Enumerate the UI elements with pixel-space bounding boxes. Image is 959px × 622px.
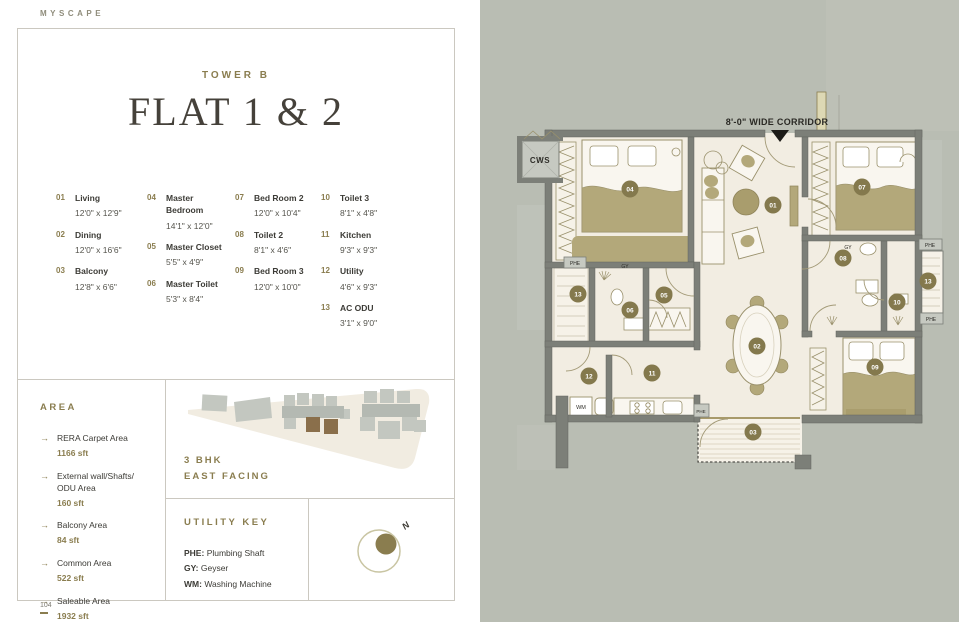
utility-key-row: GY: Geyser [184,561,300,576]
legend-room: Master Closet5'5" x 4'9" [166,241,222,269]
area-value: 84 sft [57,535,107,547]
badge-01: 01 [765,197,782,214]
toilet-icon [611,289,623,305]
badge-06: 06 [622,302,639,319]
legend-item: 13 AC ODU3'1" x 9'0" [321,302,405,330]
legend-room: Toilet 38'1" x 4'8" [340,192,377,220]
svg-text:01: 01 [769,203,777,210]
area-item: → Balcony Area84 sft [40,520,155,547]
utility-key-row: PHE: Plumbing Shaft [184,546,300,561]
legend-room: Bed Room 312'0" x 10'0" [254,265,304,293]
phe-label: PHE [925,243,936,249]
arrow-icon: → [40,433,49,460]
arrow-icon: → [40,520,49,547]
svg-text:10: 10 [893,300,901,307]
svg-text:11: 11 [649,371,656,378]
page-number-dash [40,612,48,614]
area-label: Common Area522 sft [57,558,111,585]
arrow-icon: → [40,558,49,585]
cws-label: CWS [530,156,550,165]
legend-dim: 12'0" x 10'4" [254,207,304,219]
pillow-icon [880,342,904,360]
legend-column-2: 04 Master Bedroom14'1" x 12'0" 05 Master… [147,192,233,314]
cws-shaft: CWS [517,131,563,183]
sitemap-panel: 3 BHK EAST FACING [166,379,454,498]
facing-label: EAST FACING [184,469,270,485]
legend-dim: 12'0" x 10'0" [254,281,304,293]
legend-room: Bed Room 212'0" x 10'4" [254,192,304,220]
legend-column-1: 01 Living12'0" x 12'9" 02 Dining12'0" x … [56,192,144,302]
legend-number: 09 [235,265,247,293]
svg-text:09: 09 [871,365,879,372]
arrow-icon: → [40,596,49,622]
legend-item: 03 Balcony12'8" x 6'6" [56,265,144,293]
legend-dim: 12'8" x 6'6" [75,281,117,293]
legend-dim: 8'1" x 4'8" [340,207,377,219]
stove-icon [630,401,654,414]
svg-text:13: 13 [574,292,582,299]
legend-column-3: 07 Bed Room 212'0" x 10'4" 08 Toilet 28'… [235,192,319,302]
legend-number: 12 [321,265,333,293]
left-page: MYSCAPE TOWER B FLAT 1 & 2 01 Living12'0… [0,0,480,622]
legend-item: 11 Kitchen9'3" x 9'3" [321,229,405,257]
compass-panel: N [309,498,454,600]
sitemap-caption: 3 BHK EAST FACING [184,453,270,485]
legend-dim: 5'5" x 4'9" [166,256,222,268]
kitchen-fixtures [614,398,694,416]
legend-item: 04 Master Bedroom14'1" x 12'0" [147,192,233,232]
legend-number: 01 [56,192,68,220]
badge-13-left: 13 [570,286,587,303]
pillow-icon [877,147,903,167]
pillow-icon [628,146,656,166]
wm-label: WM [576,405,586,411]
gy-label: GY [621,264,629,270]
area-value: 1932 sft [57,611,110,622]
legend-number: 08 [235,229,247,257]
badge-13-right: 13 [920,273,937,290]
legend-room: Master Bedroom14'1" x 12'0" [166,192,228,232]
page-title: FLAT 1 & 2 [18,88,454,135]
area-item: → Saleable Area1932 sft [40,596,155,622]
legend-room: Dining12'0" x 16'6" [75,229,122,257]
floor-plan: CWS PHE PHE PHE PHE GY GY WM [480,0,959,622]
area-item: → RERA Carpet Area1166 sft [40,433,155,460]
vanity [624,318,644,330]
legend-room: Living12'0" x 12'9" [75,192,122,220]
svg-text:12: 12 [585,374,593,381]
compass-icon: N [309,499,455,602]
legend-item: 01 Living12'0" x 12'9" [56,192,144,220]
ac-odu-left [554,268,588,342]
arrow-icon: → [40,471,49,510]
svg-text:06: 06 [626,308,634,315]
floor-plan-page: CWS PHE PHE PHE PHE GY GY WM [480,0,959,622]
flat-card: TOWER B FLAT 1 & 2 01 Living12'0" x 12'9… [17,28,455,601]
legend-room: Master Toilet5'3" x 8'4" [166,278,218,306]
badge-07: 07 [854,179,871,196]
legend-item: 05 Master Closet5'5" x 4'9" [147,241,233,269]
north-label: N [400,519,412,531]
legend-room: Kitchen9'3" x 9'3" [340,229,377,257]
legend-dim: 8'1" x 4'6" [254,244,291,256]
legend-number: 11 [321,229,333,257]
badge-12: 12 [581,368,598,385]
tv-console [790,186,798,226]
legend-item: 08 Toilet 28'1" x 4'6" [235,229,319,257]
badge-08: 08 [835,250,852,267]
bedroom3-furniture [810,338,915,418]
coffee-table [733,189,759,215]
area-panel: AREA → RERA Carpet Area1166 sft → Extern… [18,379,166,600]
legend-item: 09 Bed Room 312'0" x 10'0" [235,265,319,293]
svg-text:04: 04 [626,187,634,194]
legend-dim: 12'0" x 12'9" [75,207,122,219]
svg-text:08: 08 [839,256,847,263]
pillow-icon [843,147,869,167]
brochure-page: MYSCAPE TOWER B FLAT 1 & 2 01 Living12'0… [0,0,959,622]
badge-11: 11 [644,365,661,382]
svg-text:02: 02 [753,344,761,351]
legend-dim: 9'3" x 9'3" [340,244,377,256]
legend-number: 13 [321,302,333,330]
area-value: 522 sft [57,573,111,585]
sink-icon [663,401,682,414]
bhk-label: 3 BHK [184,453,270,469]
bench [572,236,694,262]
legend-item: 12 Utility4'6" x 9'3" [321,265,405,293]
legend-room: Utility4'6" x 9'3" [340,265,377,293]
svg-text:03: 03 [749,430,757,437]
area-item: → Common Area522 sft [40,558,155,585]
legend-room: Toilet 28'1" x 4'6" [254,229,291,257]
legend-room: AC ODU3'1" x 9'0" [340,302,377,330]
area-label: External wall/Shafts/ ODU Area160 sft [57,471,149,510]
legend-number: 07 [235,192,247,220]
utility-key-panel: UTILITY KEY PHE: Plumbing Shaft GY: Geys… [166,498,309,600]
area-value: 1166 sft [57,448,128,460]
legend-dim: 12'0" x 16'6" [75,244,122,256]
legend-number: 10 [321,192,333,220]
room-legend: 01 Living12'0" x 12'9" 02 Dining12'0" x … [18,192,454,377]
phe-label: PHE [696,409,705,414]
toilet-icon [862,294,878,306]
legend-item: 02 Dining12'0" x 16'6" [56,229,144,257]
legend-number: 06 [147,278,159,306]
legend-item: 07 Bed Room 212'0" x 10'4" [235,192,319,220]
badge-04: 04 [622,181,639,198]
legend-dim: 14'1" x 12'0" [166,220,228,232]
legend-number: 05 [147,241,159,269]
corridor-label: 8'-0" WIDE CORRIDOR [726,117,829,127]
legend-number: 04 [147,192,159,232]
badge-03: 03 [745,424,762,441]
badge-10: 10 [889,294,906,311]
badge-09: 09 [867,359,884,376]
pillow-icon [590,146,618,166]
area-label: Saleable Area1932 sft [57,596,110,622]
legend-dim: 5'3" x 8'4" [166,293,218,305]
legend-number: 03 [56,265,68,293]
utility-key-heading: UTILITY KEY [184,517,300,528]
area-heading: AREA [40,402,155,413]
legend-item: 10 Toilet 38'1" x 4'8" [321,192,405,220]
svg-text:05: 05 [660,293,668,300]
phe-label: PHE [570,261,581,267]
toilet-icon [860,243,876,255]
phe-label: PHE [926,317,937,323]
svg-text:07: 07 [858,185,866,192]
area-label: RERA Carpet Area1166 sft [57,433,128,460]
blanket [836,184,918,230]
area-label: Balcony Area84 sft [57,520,107,547]
area-value: 160 sft [57,498,149,510]
utility-key-rows: PHE: Plumbing Shaft GY: Geyser WM: Washi… [184,546,300,592]
tower-label: TOWER B [18,70,454,81]
legend-dim: 4'6" x 9'3" [340,281,377,293]
title-block: TOWER B FLAT 1 & 2 [18,70,454,135]
legend-dim: 3'1" x 9'0" [340,317,377,329]
legend-column-4: 10 Toilet 38'1" x 4'8" 11 Kitchen9'3" x … [321,192,405,339]
badge-05: 05 [656,287,673,304]
area-item: → External wall/Shafts/ ODU Area160 sft [40,471,155,510]
badge-02: 02 [749,338,766,355]
brand-logo: MYSCAPE [40,9,104,18]
page-number: 104 [40,602,52,609]
svg-text:13: 13 [924,279,932,286]
pillow-icon [849,342,873,360]
utility-key-row: WM: Washing Machine [184,577,300,592]
legend-number: 02 [56,229,68,257]
legend-room: Balcony12'8" x 6'6" [75,265,117,293]
legend-item: 06 Master Toilet5'3" x 8'4" [147,278,233,306]
